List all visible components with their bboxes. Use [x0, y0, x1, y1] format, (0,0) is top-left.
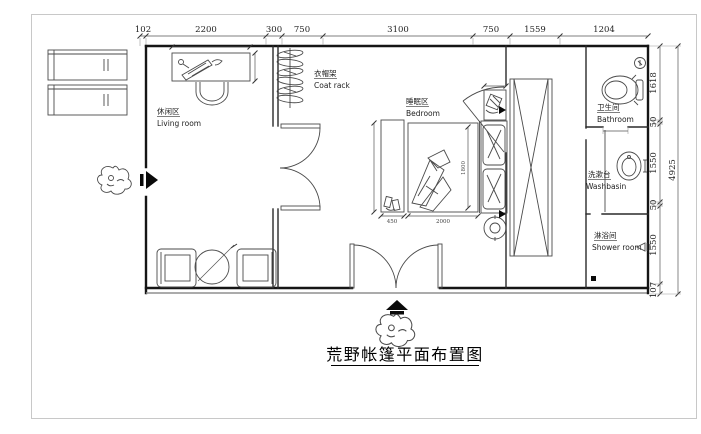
entry-marker-bottom — [376, 300, 415, 346]
dim-bed-1800: 1800 — [461, 161, 467, 175]
top-dimension-chain: 102 2200 300 750 3100 750 1559 1204 — [135, 25, 681, 46]
wardrobe-x-icon — [514, 79, 548, 256]
washbasin-label-en: Washbasin — [586, 182, 627, 191]
entry-marker-left — [98, 166, 159, 194]
pillows — [483, 125, 505, 209]
plant-icon — [376, 314, 415, 346]
wardrobe — [510, 79, 552, 256]
dim-top-1204: 1204 — [593, 25, 615, 35]
dim-right-107: 107 — [649, 282, 659, 298]
shower-room-label-zh: 淋浴间 — [594, 230, 617, 240]
dim-right-50b: 50 — [649, 200, 659, 211]
washbasin-label-zh: 洗漱台 — [588, 169, 611, 179]
dim-top-102: 102 — [135, 25, 151, 35]
dim-top-2200: 2200 — [195, 25, 217, 35]
floor-plan-page: 102 2200 300 750 3100 750 1559 1204 — [0, 0, 701, 434]
coat-rack-label-zh: 衣帽架 — [314, 68, 337, 78]
walls — [146, 46, 648, 293]
dim-top-300: 300 — [266, 25, 282, 35]
dim-top-1559: 1559 — [524, 25, 546, 35]
bathroom-label-zh: 卫生间 — [597, 102, 620, 112]
pen-on-desk-icon — [179, 60, 223, 81]
floor-drain-icon — [591, 276, 596, 281]
dim-right-1550a: 1550 — [649, 152, 659, 174]
coat-rack-icon — [277, 48, 304, 108]
toilet-icon — [602, 75, 643, 105]
round-table — [195, 244, 237, 284]
bathroom-label-en: Bathroom — [597, 115, 634, 124]
slippers-icon — [384, 196, 400, 210]
desk — [170, 45, 258, 84]
circled-marker-icon — [635, 58, 646, 69]
hinge-marker-icon — [499, 106, 506, 114]
dim-top-750a: 750 — [294, 25, 310, 35]
living-room-label: 休闲区 Living room — [157, 106, 201, 128]
nightstand — [484, 90, 506, 120]
dim-top-3100: 3100 — [387, 25, 409, 35]
washbasin-icon — [617, 152, 647, 180]
dim-right-50a: 50 — [649, 117, 659, 128]
blanket — [412, 150, 451, 211]
armchair-left — [157, 249, 196, 287]
dim-top-750b: 750 — [483, 25, 499, 35]
dim-bed-2000: 2000 — [436, 219, 450, 225]
bathroom-label: 卫生间 Bathroom — [597, 102, 634, 124]
entry-arrow-icon — [386, 300, 408, 315]
living-room-label-zh: 休闲区 — [157, 106, 180, 116]
desk-chair — [196, 82, 228, 105]
armchair-right — [237, 249, 276, 287]
sunbed-2 — [48, 85, 127, 115]
bench — [381, 120, 404, 212]
bedroom-label-en: Bedroom — [406, 109, 440, 118]
dim-right-1618: 1618 — [649, 72, 659, 94]
washbasin-label: 洗漱台 Washbasin — [586, 169, 627, 191]
plan-title-text: 荒野帐篷平面布置图 — [326, 345, 484, 364]
dim-bench-450: 450 — [387, 219, 398, 225]
coat-rack-label-en: Coat rack — [314, 81, 351, 90]
plant-icon — [98, 166, 132, 194]
bedroom-label: 睡眠区 Bedroom — [406, 97, 440, 118]
floor-plan-drawing: 102 2200 300 750 3100 750 1559 1204 — [0, 0, 701, 434]
living-room-label-en: Living room — [157, 119, 201, 128]
dim-right-overall-4925: 4925 — [668, 159, 678, 181]
double-door-partition — [280, 124, 320, 210]
plan-title: 荒野帐篷平面布置图 — [326, 345, 484, 366]
round-stool — [484, 210, 506, 241]
bedroom-label-zh: 睡眠区 — [406, 97, 429, 106]
coat-rack-label: 衣帽架 Coat rack — [314, 68, 351, 90]
dim-right-1550b: 1550 — [649, 234, 659, 256]
entry-arrow-icon — [140, 171, 158, 189]
sunbed-1 — [48, 50, 127, 80]
shower-room-label: 淋浴间 Shower room — [592, 230, 642, 252]
double-door-entrance — [350, 244, 442, 288]
right-dimension-chain: 1618 50 1550 50 1550 107 4925 — [649, 44, 681, 299]
hinge-marker-icon — [499, 210, 506, 218]
bathroom-door-dim — [603, 127, 628, 134]
shower-room-label-en: Shower room — [592, 243, 642, 252]
